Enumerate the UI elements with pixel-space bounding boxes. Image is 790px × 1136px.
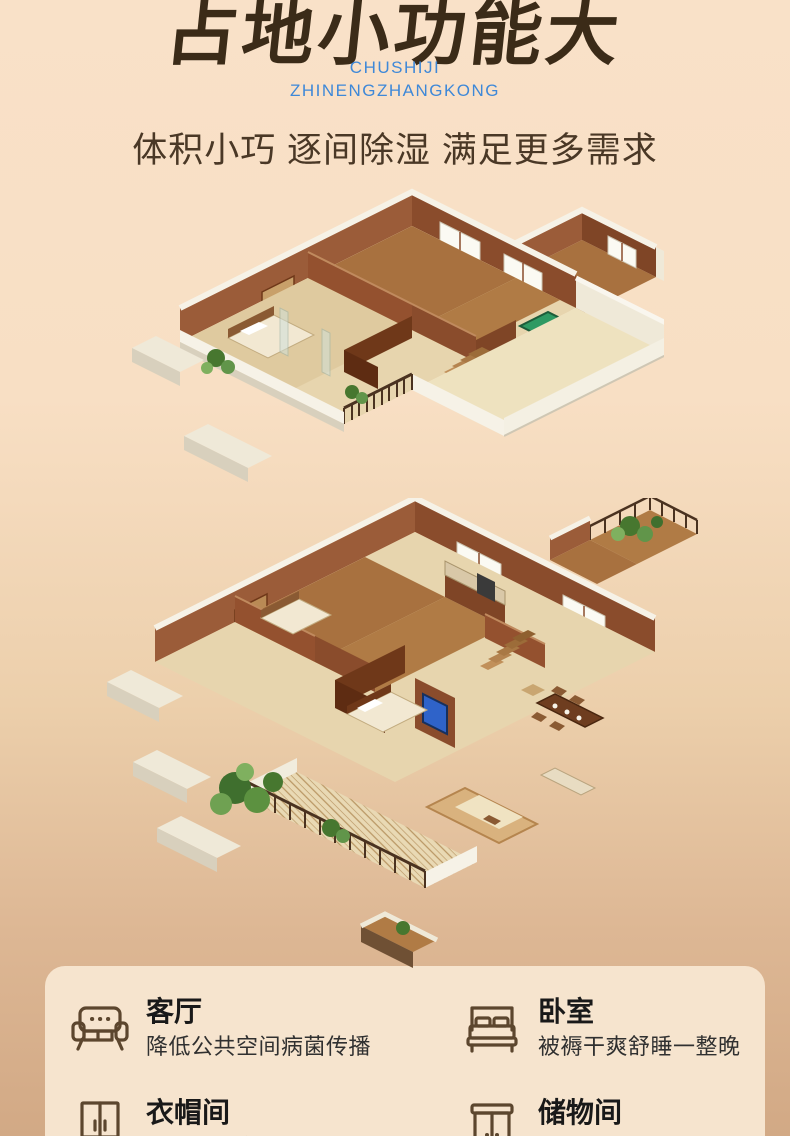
feature-title: 客厅 (146, 996, 371, 1028)
sofa-icon (67, 996, 133, 1056)
feature-title: 卧室 (538, 996, 741, 1028)
feature-desc: 降低公共空间病菌传播 (146, 1033, 371, 1061)
feature-title: 储物间 (538, 1097, 741, 1129)
feature-living-room: 客厅 降低公共空间病菌传播 (67, 996, 400, 1061)
product-detail-page: 占地小功能大 CHUSHIJI ZHINENGZHANGKONG 体积小巧 逐间… (0, 0, 790, 1136)
floor-plan-lower-image (85, 498, 705, 976)
cabinet-icon (459, 1097, 525, 1136)
pinyin-line-2: ZHINENGZHANGKONG (0, 79, 790, 102)
feature-title: 衣帽间 (146, 1097, 349, 1129)
floor-plan-upper-image (112, 186, 664, 524)
feature-storage-room: 储物间 储物不受潮防虫防霉 (459, 1097, 747, 1136)
tagline: 体积小巧 逐间除湿 满足更多需求 (0, 122, 790, 173)
feature-bedroom: 卧室 被褥干爽舒睡一整晚 (459, 996, 747, 1061)
feature-card: 客厅 降低公共空间病菌传播 卧室 被褥干爽舒睡一整晚 (45, 966, 765, 1136)
feature-cloakroom: 衣帽间 除湿防霉全方位呵护 (67, 1097, 400, 1136)
pinyin-subtitle: CHUSHIJI ZHINENGZHANGKONG (0, 56, 790, 102)
bed-icon (459, 996, 525, 1056)
wardrobe-icon (67, 1097, 133, 1136)
feature-desc: 被褥干爽舒睡一整晚 (538, 1033, 741, 1061)
pinyin-line-1: CHUSHIJI (0, 56, 790, 79)
